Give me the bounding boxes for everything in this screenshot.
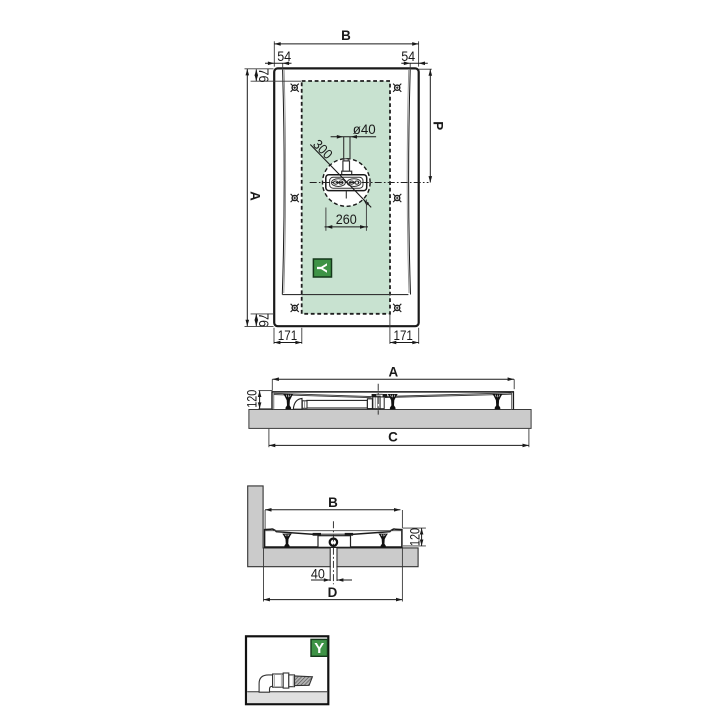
svg-text:120: 120 bbox=[407, 528, 422, 546]
svg-text:B: B bbox=[328, 495, 338, 510]
svg-text:76: 76 bbox=[256, 313, 271, 328]
svg-text:54: 54 bbox=[401, 49, 415, 64]
svg-text:76: 76 bbox=[256, 68, 271, 83]
svg-text:C: C bbox=[388, 430, 398, 445]
svg-text:171: 171 bbox=[278, 328, 297, 343]
svg-text:B: B bbox=[341, 28, 351, 43]
svg-text:Y: Y bbox=[314, 640, 324, 657]
svg-text:120: 120 bbox=[244, 389, 259, 407]
svg-text:171: 171 bbox=[394, 328, 413, 343]
svg-text:A: A bbox=[388, 365, 398, 380]
svg-text:Y: Y bbox=[313, 263, 330, 273]
svg-text:54: 54 bbox=[277, 49, 291, 64]
svg-text:A: A bbox=[248, 191, 263, 201]
svg-text:260: 260 bbox=[336, 212, 357, 227]
svg-text:P: P bbox=[430, 121, 445, 130]
svg-text:ø40: ø40 bbox=[353, 122, 376, 137]
svg-text:D: D bbox=[328, 585, 338, 600]
svg-text:40: 40 bbox=[311, 566, 325, 581]
